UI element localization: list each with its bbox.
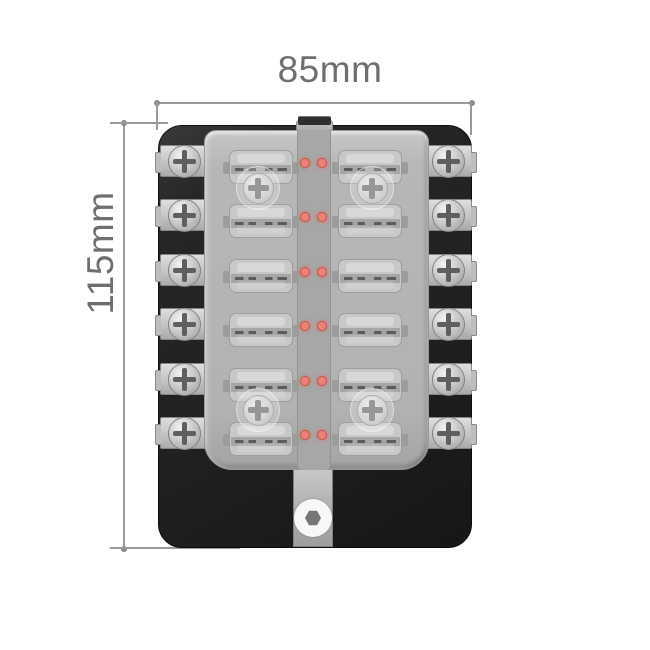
led-indicator [300,158,310,168]
fuse [338,313,402,347]
fuse-window [346,154,394,163]
fuse-window [237,263,285,272]
terminal-screw [432,363,465,396]
led-indicator [300,376,310,386]
terminal-screw [168,363,201,396]
fuse-window [346,263,394,272]
terminal-screw [168,417,201,450]
fuse-window [237,154,285,163]
terminal-screw [168,199,201,232]
mounting-hole [294,499,332,537]
fuse-window [346,226,394,234]
fuse [338,259,402,293]
terminal-screw [168,254,201,287]
width-dimension-label: 85mm [230,50,430,90]
led-indicator [317,267,327,277]
hex-nut-icon [305,510,321,526]
fuse-window [237,444,285,452]
led-indicator [300,430,310,440]
terminal-screw [432,145,465,178]
cover-screw [357,173,388,204]
fuse-window [346,281,394,289]
fuse-window [237,226,285,234]
led-indicator [317,376,327,386]
product-dimension-diagram: 85mm 115mm [0,0,650,650]
led-indicator [317,430,327,440]
led-indicator [317,212,327,222]
fuse-box [158,125,472,548]
fuse-window [346,317,394,326]
fuse-window [346,335,394,343]
dimension-extension-line [110,122,168,124]
width-dimension-line [157,102,472,104]
terminal-screw [432,417,465,450]
terminal-screw [432,308,465,341]
led-indicator [300,212,310,222]
cover-screw [243,395,274,426]
terminal-screw [168,145,201,178]
fuse [229,313,293,347]
fuse-window [346,444,394,452]
cover-screw [243,173,274,204]
led-indicator [300,267,310,277]
fuse [229,259,293,293]
height-dimension-line [123,123,125,549]
dimension-extension-line [470,102,472,135]
fuse-window [237,372,285,381]
fuse-window [346,372,394,381]
led-indicator [300,321,310,331]
fuse-window [237,317,285,326]
terminal-screw [168,308,201,341]
cover-latch-clip-icon [298,116,331,125]
terminal-screw [432,199,465,232]
fuse-window [237,281,285,289]
led-indicator [317,321,327,331]
height-dimension-label: 115mm [81,133,121,373]
led-channel [297,130,331,470]
fuse-window [237,335,285,343]
cover-screw [357,395,388,426]
dimension-extension-line [156,102,158,130]
led-indicator [317,158,327,168]
terminal-screw [432,254,465,287]
